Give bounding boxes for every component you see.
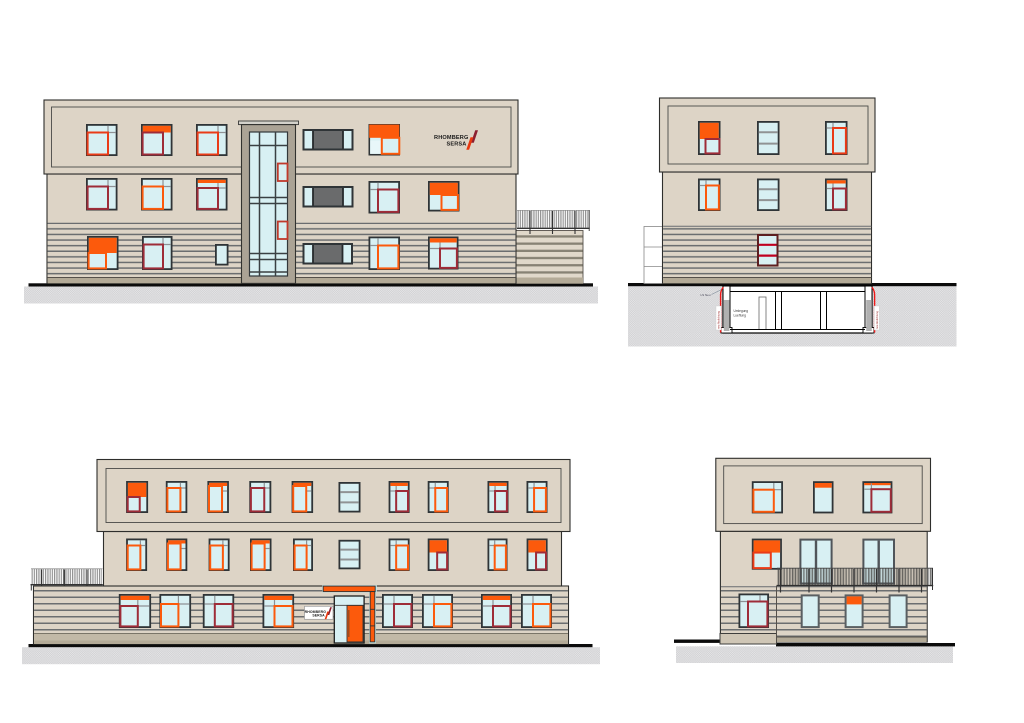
svg-text:neu Abdichtung: neu Abdichtung	[717, 311, 721, 329]
svg-text:LS Neu: LS Neu	[701, 293, 711, 297]
svg-text:Umlegung: Umlegung	[734, 309, 749, 313]
svg-text:SERSA: SERSA	[312, 614, 325, 618]
svg-text:neu Abdichtung: neu Abdichtung	[875, 311, 879, 329]
svg-text:Lueftung: Lueftung	[734, 314, 747, 318]
svg-text:SERSA: SERSA	[446, 142, 466, 148]
svg-text:RHOMBERG: RHOMBERG	[434, 135, 468, 141]
